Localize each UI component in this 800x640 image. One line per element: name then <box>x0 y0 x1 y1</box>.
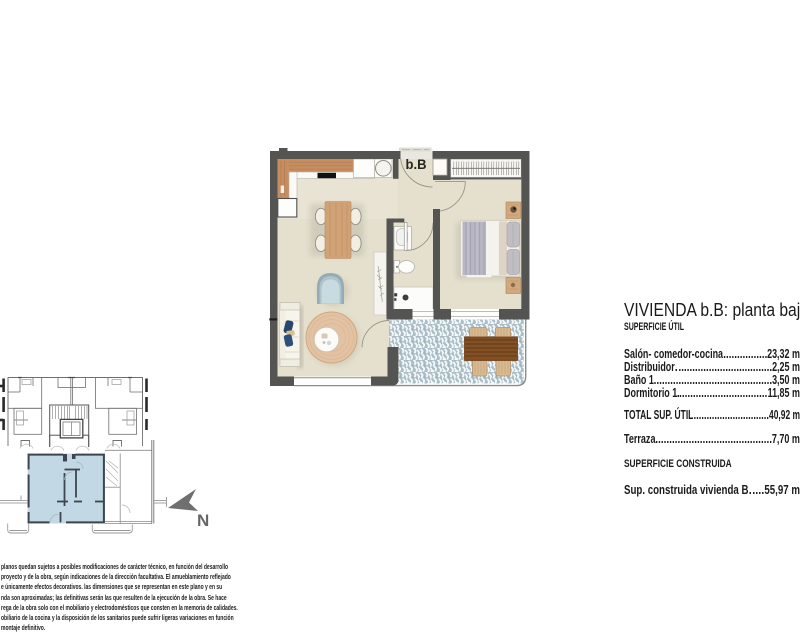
svg-text:N: N <box>197 511 209 530</box>
svg-text:b.B: b.B <box>406 157 427 172</box>
